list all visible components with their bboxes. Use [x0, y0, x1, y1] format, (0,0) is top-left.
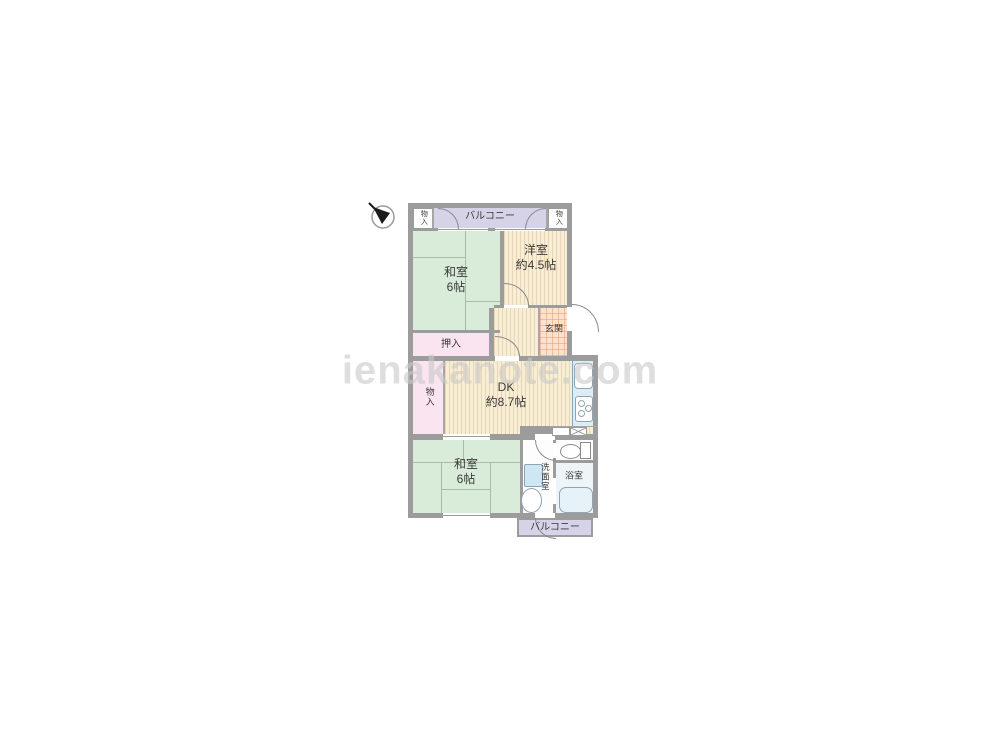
label-balcony-top: バルコニー: [465, 211, 515, 224]
room-name: 洋室: [524, 243, 548, 257]
wall-right-upper: [567, 203, 572, 361]
room-size: 6帖: [457, 472, 476, 486]
window-box: [552, 427, 570, 436]
room-name: 和室: [444, 265, 468, 279]
room-size: 約4.5帖: [516, 258, 557, 272]
label-yokushitsu: 浴室: [565, 470, 583, 481]
wall-washitsu-oshiire: [408, 330, 500, 333]
label-storage-top-right: 物入: [554, 210, 563, 226]
wall-bottom: [408, 513, 598, 518]
tatami-line: [413, 257, 465, 258]
label-washitsu-top: 和室 6帖: [444, 265, 468, 295]
laundry-pan-icon: [521, 488, 542, 513]
label-youshitsu: 洋室 約4.5帖: [516, 243, 557, 273]
window-line: [495, 229, 545, 230]
room-name: 和室: [454, 457, 478, 471]
wall-toilet-bath: [556, 460, 593, 463]
watermark-text: ienakanote.com: [342, 349, 658, 394]
tatami-line: [441, 489, 490, 490]
toilet-bowl-icon: [560, 444, 581, 459]
label-washitsu-bottom: 和室 6帖: [454, 457, 478, 487]
label-balcony-bottom: バルコニー: [530, 522, 580, 535]
sliding-door-line: [443, 436, 490, 437]
window-line: [443, 515, 490, 516]
floorplan-page: { "watermark": "ienakanote.com", "compas…: [0, 0, 1000, 750]
room-size: 約8.7帖: [486, 395, 527, 409]
label-genkan: 玄関: [545, 323, 563, 334]
stove-icon: [575, 396, 593, 422]
sliding-door-dk-washitsu: [443, 434, 490, 440]
wall-below-balcony: [408, 228, 572, 231]
window-line: [438, 229, 488, 230]
north-arrow-icon: [363, 197, 399, 233]
label-senmenshitsu: 洗面室: [540, 463, 551, 492]
door-arc-entrance: [572, 304, 599, 332]
toilet-tank-icon: [580, 442, 591, 459]
tatami-line: [441, 462, 442, 513]
label-storage-top-left: 物入: [419, 210, 428, 226]
pipe-space-icon: [570, 427, 587, 436]
room-size: 6帖: [447, 280, 466, 294]
tatami-line: [465, 301, 500, 302]
door-opening-bath: [553, 478, 556, 504]
bathtub-icon: [559, 487, 593, 513]
wall-ps-left: [520, 426, 552, 434]
wall-balcony-divider-right: [546, 208, 548, 228]
wall-balcony-divider-left: [432, 208, 434, 228]
tatami-line: [490, 462, 491, 513]
